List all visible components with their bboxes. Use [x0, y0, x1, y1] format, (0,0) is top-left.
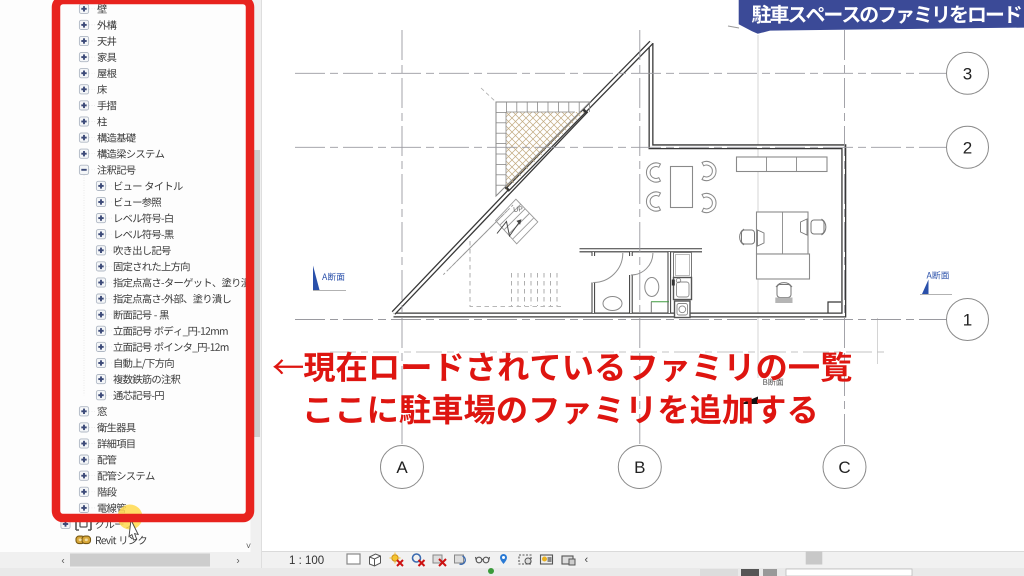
svg-text:C: C [838, 458, 850, 477]
svg-text:›: › [236, 556, 239, 567]
svg-text:UP: UP [513, 206, 524, 214]
svg-text:2: 2 [963, 138, 972, 157]
svg-text:‹: ‹ [585, 554, 589, 566]
svg-text:‹: ‹ [61, 556, 64, 567]
svg-text:1: 1 [963, 311, 972, 330]
svg-text:3: 3 [963, 64, 972, 83]
svg-text:1 : 100: 1 : 100 [289, 555, 324, 567]
svg-text:B: B [634, 458, 645, 477]
svg-text:˅: ˅ [246, 541, 251, 551]
svg-text:A: A [396, 458, 408, 477]
